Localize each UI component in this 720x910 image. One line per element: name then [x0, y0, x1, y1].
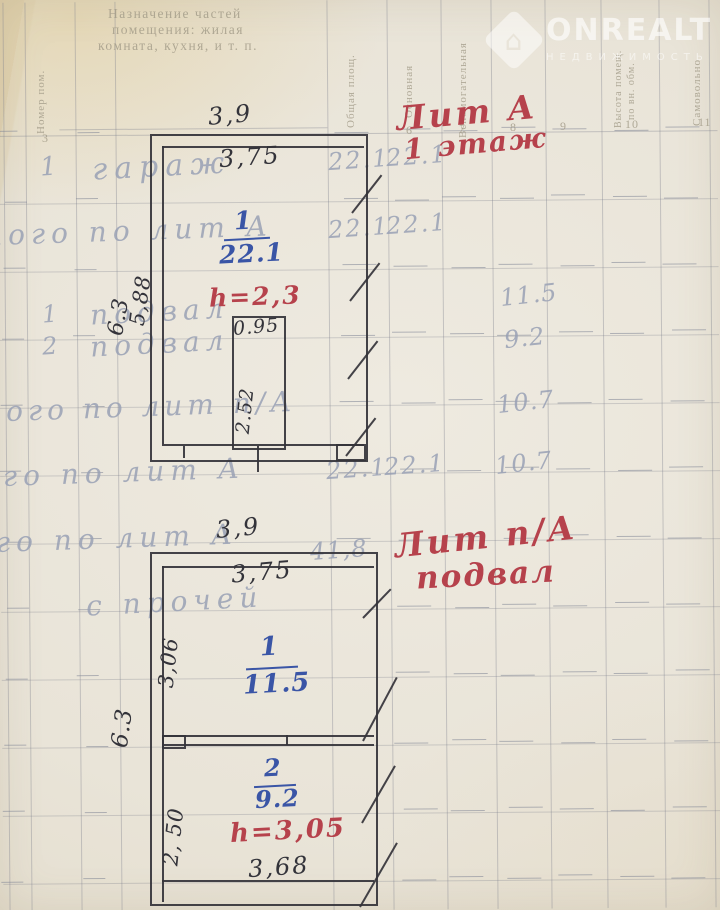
- floor-plans-layer: [0, 0, 720, 910]
- onrealt-logo-icon: ⌂: [483, 9, 545, 71]
- divider-wall-top: [162, 735, 374, 737]
- onrealt-watermark: ⌂ ONREALT НЕДВИЖИМОСТЬ: [492, 16, 712, 63]
- plan-lower-inner-wall-bottom: [162, 880, 374, 882]
- plan-upper-inner-wall-left: [162, 146, 164, 444]
- inspection-pit: [232, 316, 286, 450]
- divider-wall-bottom: [162, 744, 374, 746]
- plan-lower-outer-wall: [150, 552, 378, 906]
- divider-wall-tick: [286, 735, 288, 745]
- bottom-wall-tick: [183, 446, 185, 458]
- pit-opening-line: [257, 446, 259, 472]
- watermark-tagline: НЕДВИЖИМОСТЬ: [546, 52, 712, 63]
- plan-lower-inner-wall-left: [162, 566, 164, 902]
- plan-upper-inner-wall-top: [162, 146, 364, 148]
- house-icon: ⌂: [505, 24, 523, 57]
- divider-wall-box: [162, 735, 186, 749]
- technical-passport-scanned-page: Назначение частейпомещения: жилаякомната…: [0, 0, 720, 910]
- watermark-brand: ONREALT: [546, 16, 712, 46]
- plan-lower-inner-wall-top: [162, 566, 374, 568]
